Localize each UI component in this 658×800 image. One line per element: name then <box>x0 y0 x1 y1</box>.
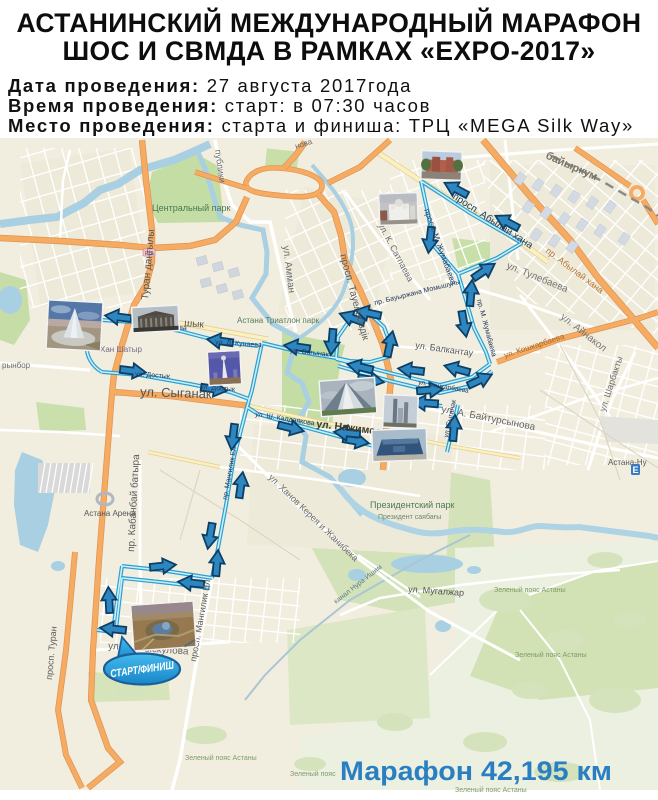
svg-text:рынбор: рынбор <box>2 361 31 370</box>
svg-text:Центральный парк: Центральный парк <box>152 203 231 213</box>
svg-text:Зеленый пояс: Зеленый пояс <box>290 770 336 778</box>
svg-text:Зеленый пояс Астаны: Зеленый пояс Астаны <box>494 586 566 594</box>
svg-text:Астана Триатлон парк: Астана Триатлон парк <box>237 316 320 325</box>
svg-text:Зеленый пояс Астаны: Зеленый пояс Астаны <box>455 786 527 794</box>
svg-text:Зеленый пояс Астаны: Зеленый пояс Астаны <box>515 651 587 659</box>
svg-text:Президент саябағы: Президент саябағы <box>378 513 441 521</box>
svg-text:Астана-Ну: Астана-Ну <box>608 458 647 467</box>
svg-text:Марафон 42,195 км: Марафон 42,195 км <box>340 756 612 786</box>
svg-text:Хан Шатыр: Хан Шатыр <box>100 345 142 354</box>
svg-text:Е: Е <box>632 465 638 475</box>
svg-text:Президентский парк: Президентский парк <box>370 500 455 510</box>
svg-text:Астана Арена: Астана Арена <box>84 509 136 518</box>
svg-text:Зеленый пояс Астаны: Зеленый пояс Астаны <box>185 754 257 762</box>
